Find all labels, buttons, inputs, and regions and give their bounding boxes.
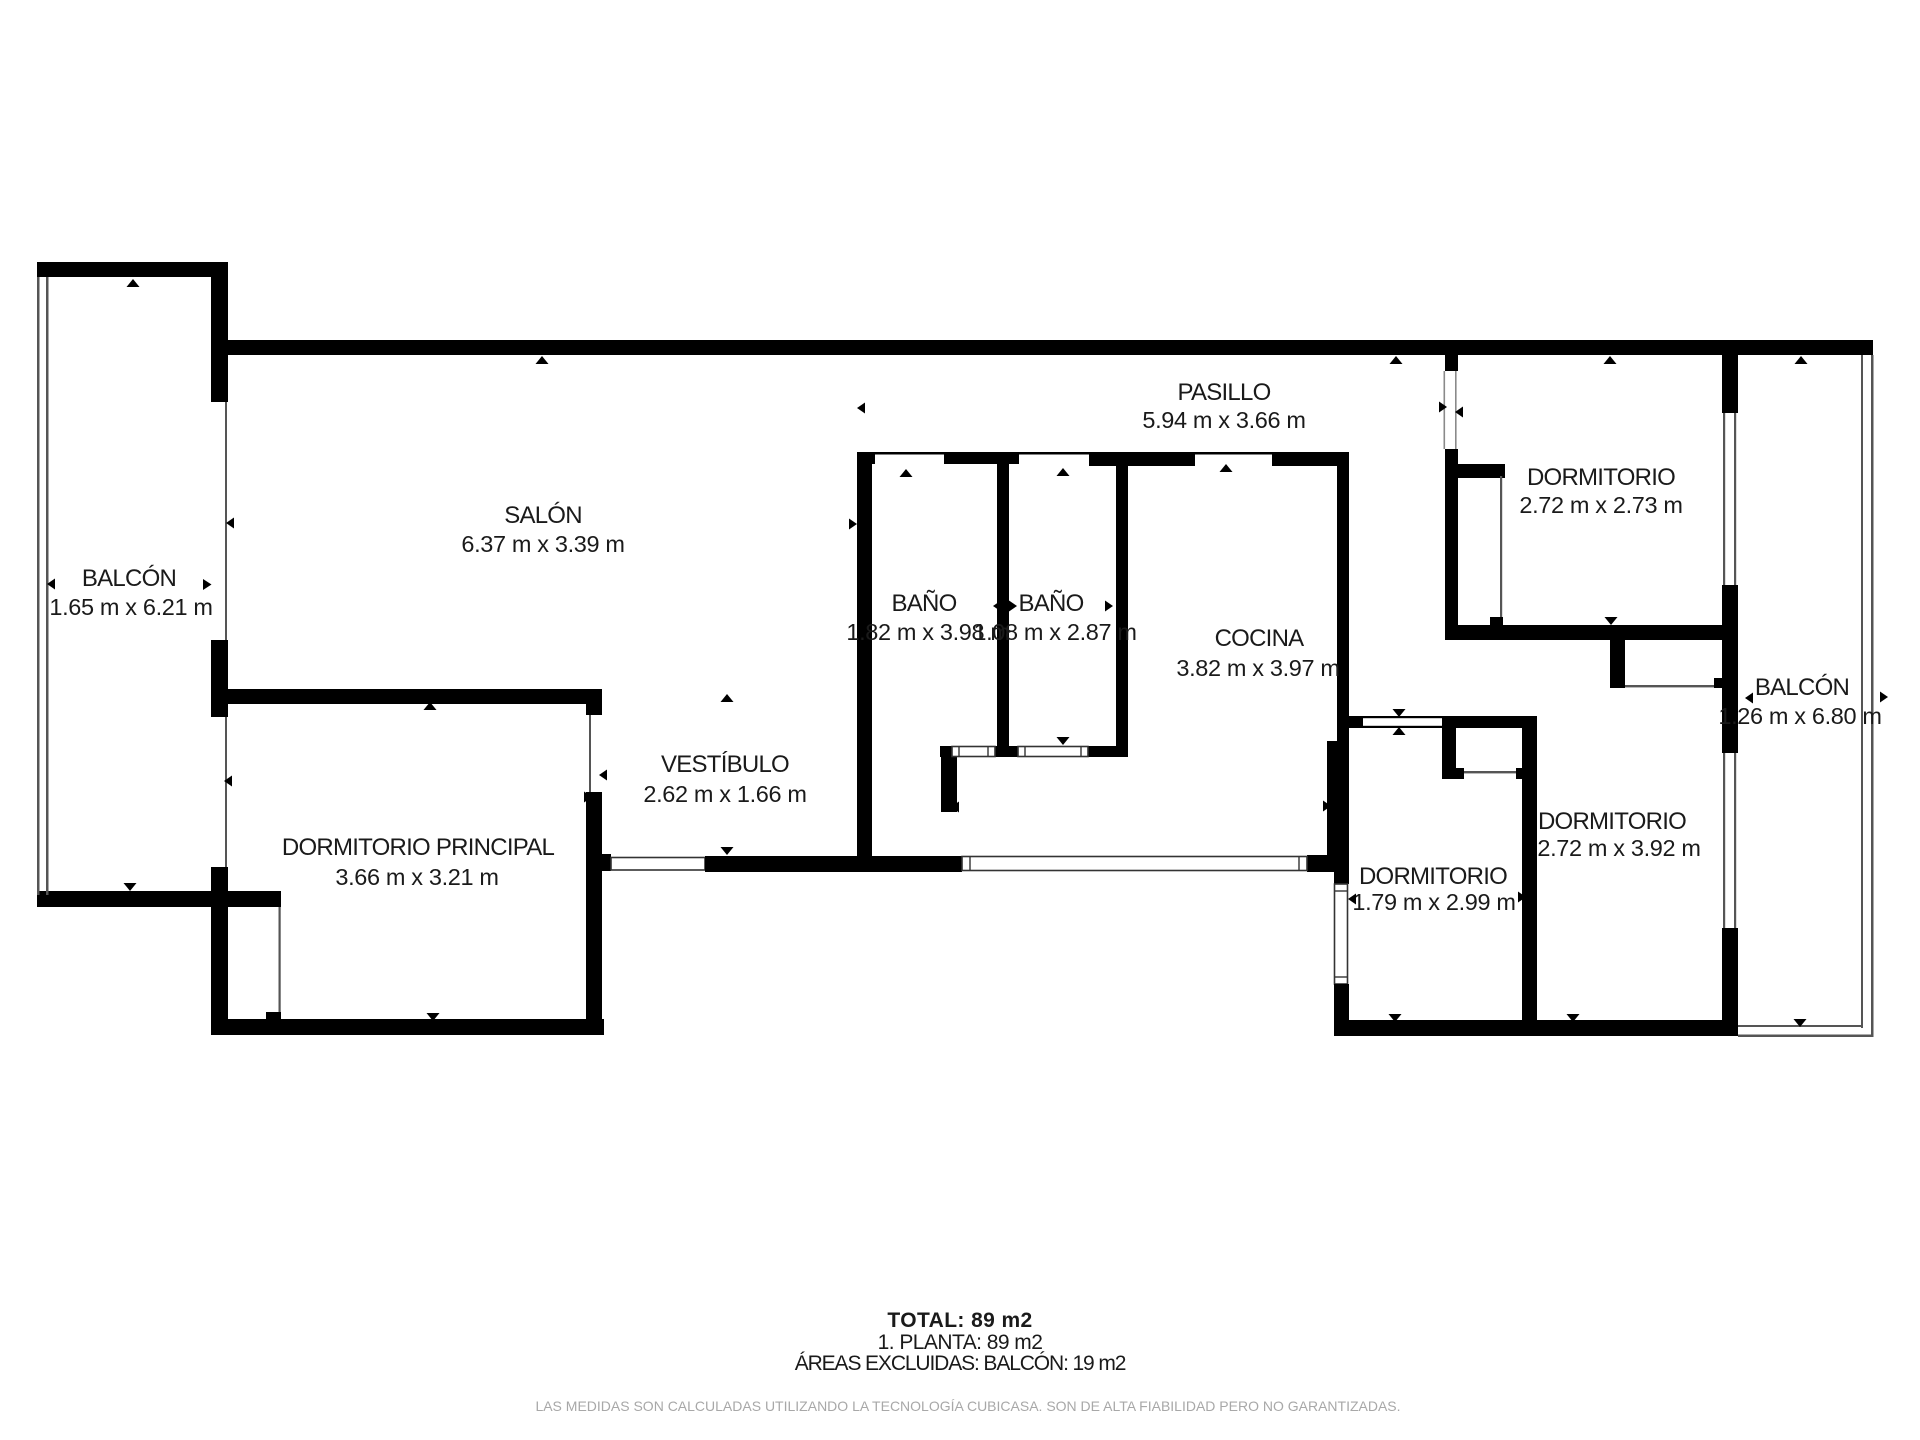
svg-text:1. PLANTA: 89 m2: 1. PLANTA: 89 m2: [878, 1331, 1043, 1354]
svg-text:DORMITORIO PRINCIPAL: DORMITORIO PRINCIPAL: [282, 834, 555, 861]
svg-text:3.82 m x 3.97 m: 3.82 m x 3.97 m: [1176, 655, 1339, 681]
svg-text:DORMITORIO: DORMITORIO: [1527, 464, 1675, 491]
svg-text:2.62 m x 1.66 m: 2.62 m x 1.66 m: [643, 781, 806, 807]
svg-text:1.26 m x 6.80 m: 1.26 m x 6.80 m: [1718, 703, 1881, 729]
svg-text:2.72 m x 2.73 m: 2.72 m x 2.73 m: [1519, 492, 1682, 518]
svg-text:VESTÍBULO: VESTÍBULO: [661, 751, 789, 778]
svg-text:LAS MEDIDAS SON CALCULADAS UTI: LAS MEDIDAS SON CALCULADAS UTILIZANDO LA…: [535, 1398, 1400, 1414]
svg-text:2.72 m x 3.92 m: 2.72 m x 3.92 m: [1537, 835, 1700, 861]
svg-text:COCINA: COCINA: [1215, 625, 1305, 652]
svg-text:BAÑO: BAÑO: [891, 590, 956, 617]
svg-text:3.66 m x 3.21 m: 3.66 m x 3.21 m: [335, 864, 498, 890]
svg-text:TOTAL: 89 m2: TOTAL: 89 m2: [887, 1309, 1032, 1332]
svg-text:BALCÓN: BALCÓN: [1755, 674, 1849, 701]
svg-text:BAÑO: BAÑO: [1018, 590, 1083, 617]
svg-text:ÁREAS EXCLUIDAS: BALCÓN: 19 m2: ÁREAS EXCLUIDAS: BALCÓN: 19 m2: [795, 1352, 1126, 1375]
svg-text:6.37 m x 3.39 m: 6.37 m x 3.39 m: [461, 531, 624, 557]
svg-text:1.79 m x 2.99 m: 1.79 m x 2.99 m: [1352, 889, 1515, 915]
svg-text:DORMITORIO: DORMITORIO: [1359, 863, 1507, 890]
svg-text:1.08 m x 2.87 m: 1.08 m x 2.87 m: [973, 619, 1136, 645]
svg-text:SALÓN: SALÓN: [504, 502, 582, 529]
svg-text:BALCÓN: BALCÓN: [82, 565, 176, 592]
svg-text:5.94 m x 3.66 m: 5.94 m x 3.66 m: [1142, 407, 1305, 433]
svg-text:DORMITORIO: DORMITORIO: [1538, 808, 1686, 835]
svg-text:PASILLO: PASILLO: [1177, 379, 1270, 406]
svg-text:1.65 m x 6.21 m: 1.65 m x 6.21 m: [49, 594, 212, 620]
